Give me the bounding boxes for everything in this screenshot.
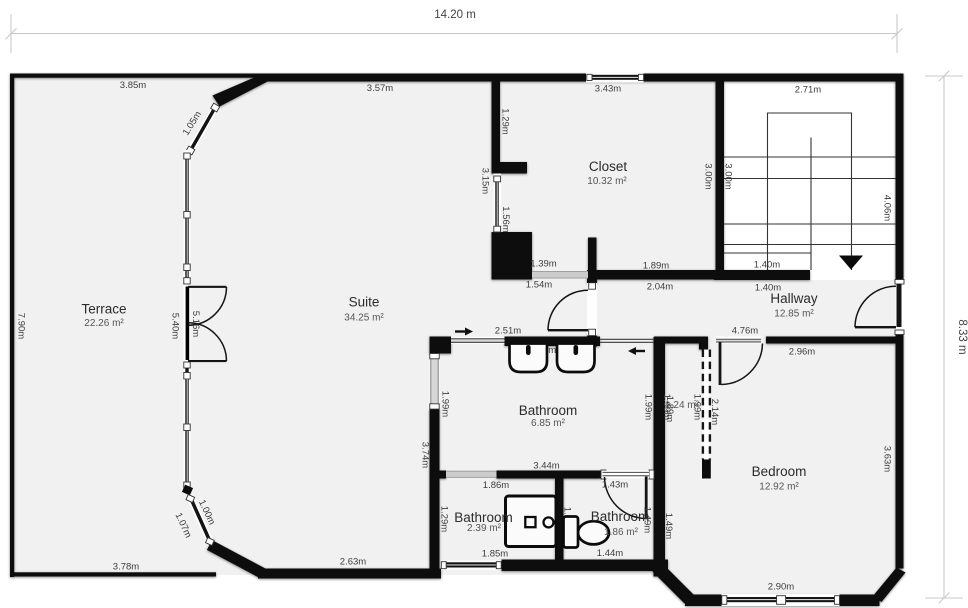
svg-text:1.86m: 1.86m: [483, 480, 509, 491]
svg-text:Bathroom: Bathroom: [519, 403, 578, 418]
svg-text:2.71m: 2.71m: [795, 85, 821, 96]
svg-text:1.99m: 1.99m: [692, 394, 703, 420]
svg-text:1.99m: 1.99m: [643, 394, 654, 420]
svg-text:3.43m: 3.43m: [595, 84, 621, 95]
svg-text:12.85 m²: 12.85 m²: [774, 309, 814, 320]
svg-text:22.26 m²: 22.26 m²: [84, 318, 124, 329]
svg-text:1.29m: 1.29m: [500, 108, 511, 134]
svg-text:1.54m: 1.54m: [526, 280, 552, 291]
svg-text:Bathroom: Bathroom: [591, 509, 650, 524]
svg-text:7.90m: 7.90m: [16, 313, 27, 339]
svg-text:3.00m: 3.00m: [703, 163, 714, 189]
svg-text:3.78m: 3.78m: [113, 562, 139, 573]
svg-text:3.44m: 3.44m: [533, 461, 559, 472]
svg-text:8.33 m: 8.33 m: [956, 319, 968, 354]
svg-text:1.43m: 1.43m: [602, 480, 628, 491]
svg-text:1.56m: 1.56m: [500, 206, 511, 232]
svg-text:2.04m: 2.04m: [647, 282, 673, 293]
svg-text:2.51m: 2.51m: [495, 326, 521, 337]
svg-text:3.00m: 3.00m: [723, 163, 734, 189]
svg-text:1.49m: 1.49m: [663, 513, 674, 539]
svg-text:5.16m: 5.16m: [190, 311, 201, 337]
svg-text:1.89m: 1.89m: [664, 396, 675, 422]
svg-text:34.25 m²: 34.25 m²: [344, 313, 384, 324]
svg-text:1.29m: 1.29m: [439, 506, 450, 532]
svg-text:2.14m: 2.14m: [709, 399, 720, 425]
svg-text:1.86 m²: 1.86 m²: [604, 527, 639, 538]
svg-text:3.15m: 3.15m: [480, 168, 491, 194]
svg-text:Terrace: Terrace: [81, 301, 126, 316]
svg-text:2.39 m²: 2.39 m²: [467, 523, 502, 534]
svg-text:10.32 m²: 10.32 m²: [587, 176, 627, 187]
svg-text:12.92 m²: 12.92 m²: [759, 482, 799, 493]
svg-text:1.99m: 1.99m: [440, 391, 451, 417]
svg-text:5.40m: 5.40m: [170, 313, 181, 339]
svg-text:2.96m: 2.96m: [789, 347, 815, 358]
svg-text:6.85 m²: 6.85 m²: [531, 418, 566, 429]
svg-text:1.89m: 1.89m: [643, 261, 669, 272]
svg-text:3.57m: 3.57m: [367, 83, 393, 94]
svg-text:3.74m: 3.74m: [420, 442, 431, 468]
svg-text:1.39m: 1.39m: [530, 259, 556, 270]
svg-text:3.63m: 3.63m: [882, 446, 893, 472]
svg-text:1.44m: 1.44m: [597, 548, 623, 559]
svg-text:Suite: Suite: [349, 295, 380, 310]
svg-text:4.06m: 4.06m: [882, 195, 893, 221]
svg-text:2.63m: 2.63m: [340, 557, 366, 568]
svg-text:1.85m: 1.85m: [482, 549, 508, 560]
svg-text:14.20 m: 14.20 m: [434, 9, 476, 21]
svg-text:4.76m: 4.76m: [732, 326, 758, 337]
svg-text:3.85m: 3.85m: [120, 80, 146, 91]
svg-text:1.40m: 1.40m: [754, 260, 780, 271]
svg-text:Hallway: Hallway: [770, 291, 818, 306]
svg-text:2.90m: 2.90m: [768, 582, 794, 593]
svg-text:Closet: Closet: [589, 159, 628, 174]
svg-text:Bedroom: Bedroom: [752, 464, 807, 479]
